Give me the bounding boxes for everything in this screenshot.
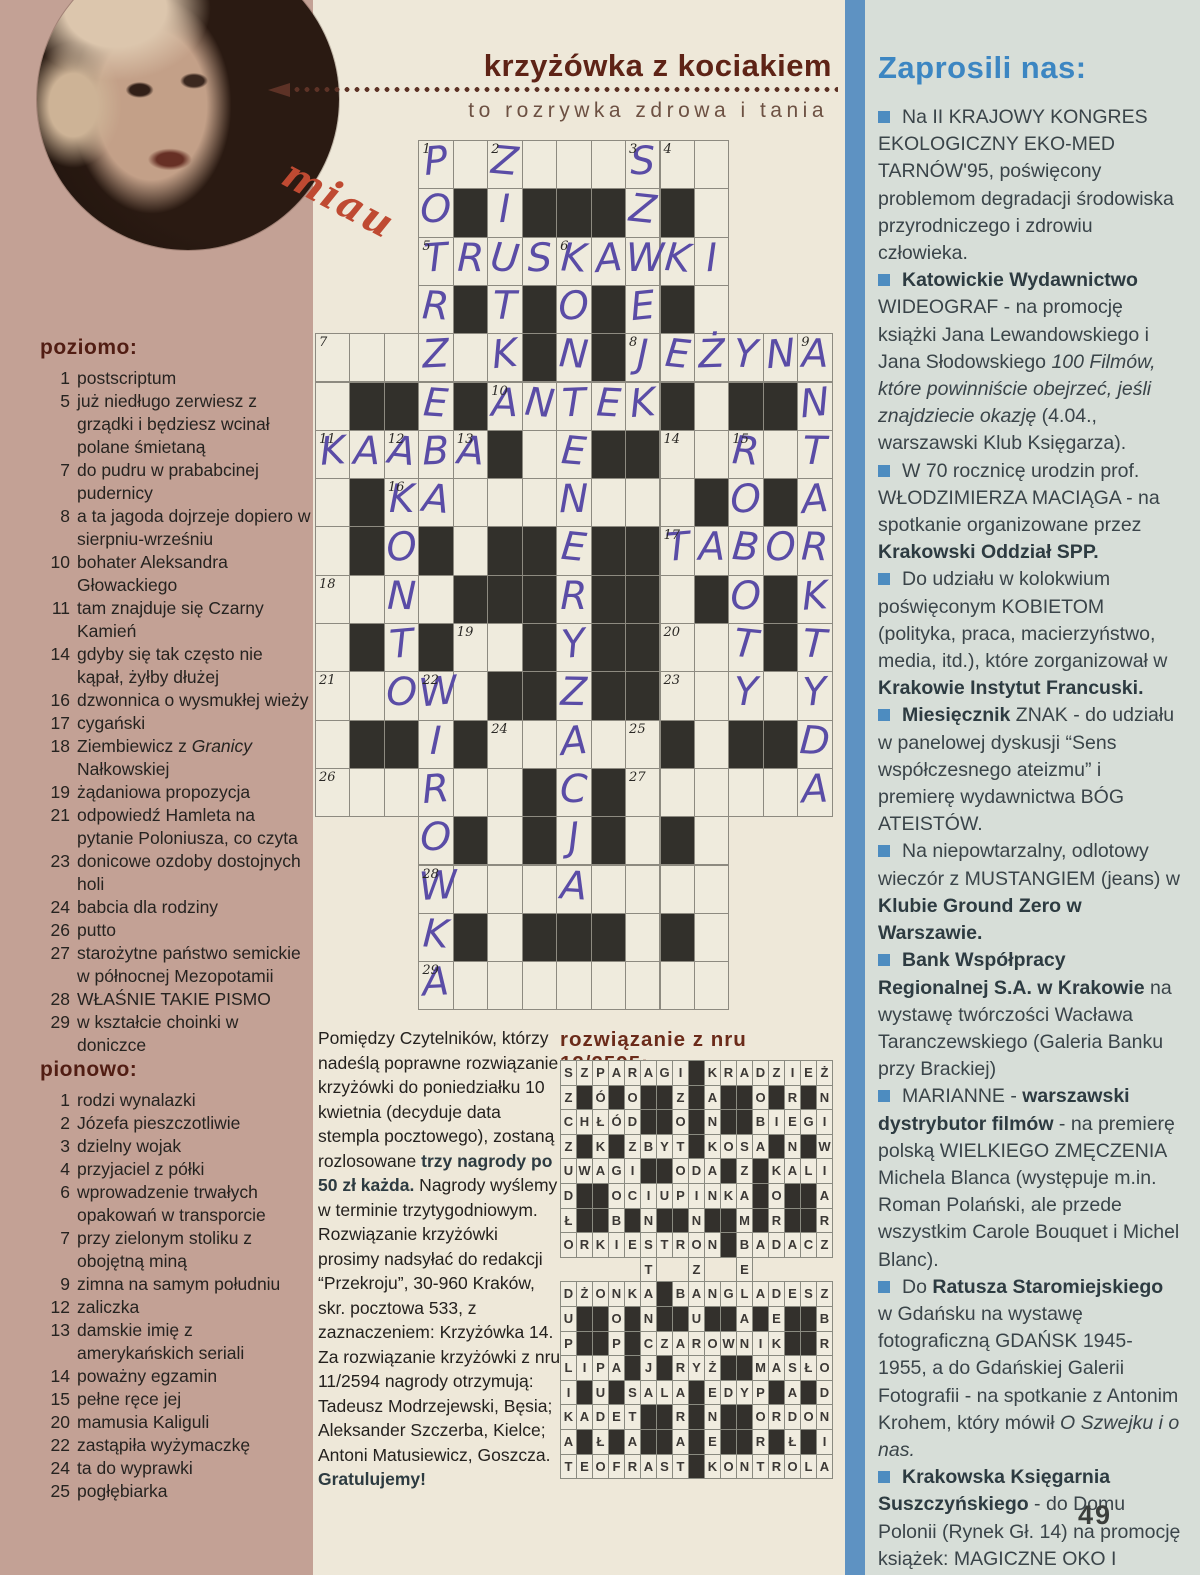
solution-cell: E <box>736 1257 753 1283</box>
solution-letter: D <box>561 1188 576 1203</box>
solution-cell-black <box>608 1380 625 1406</box>
solution-letter: N <box>705 1237 720 1252</box>
crossword-cell-black <box>694 575 729 624</box>
crossword-cell <box>660 961 695 1010</box>
crossword-cell-black <box>728 382 763 431</box>
solution-cell: S <box>624 1380 641 1406</box>
crossword-cell: A <box>556 720 591 769</box>
solution-letter: Z <box>737 1163 752 1178</box>
solution-cell: A <box>624 1429 641 1455</box>
solution-cell: A <box>608 1355 625 1381</box>
handwritten-letter: O <box>729 573 763 619</box>
solution-cell: A <box>704 1085 721 1111</box>
solution-letter: N <box>609 1286 624 1301</box>
solution-letter: S <box>657 1459 672 1474</box>
solution-letter: K <box>705 1459 720 1474</box>
sidebar-item: Bank Współpracy Regionalnej S.A. w Krako… <box>878 947 1181 1083</box>
crossword-cell <box>591 961 626 1010</box>
clue-number: 25 <box>40 1480 77 1503</box>
clue-text: zastąpiła wyżymaczkę <box>77 1434 312 1457</box>
clue-number: 7 <box>40 459 77 505</box>
solution-cell-black <box>720 1208 737 1234</box>
crossword-cell <box>522 961 557 1010</box>
crossword-cell: T <box>384 623 419 672</box>
solution-cell: Z <box>672 1085 689 1111</box>
solution-letter: Ó <box>609 1114 624 1129</box>
crossword-cell: A <box>556 865 591 914</box>
solution-cell: O <box>816 1355 833 1381</box>
solution-cell: E <box>800 1060 817 1086</box>
clue-number: 18 <box>40 735 77 781</box>
crossword-cell-black <box>556 913 591 962</box>
handwritten-letter: E <box>590 380 626 427</box>
clue-text: mamusia Kaliguli <box>77 1411 312 1434</box>
solution-cell: S <box>640 1232 657 1258</box>
sidebar-item: Na niepowtarzalny, odlotowy wieczór z MU… <box>878 838 1181 947</box>
clue-number: 24 <box>40 1457 77 1480</box>
handwritten-letter: J <box>556 814 592 861</box>
clue-text: żądaniowa propozycja <box>77 781 312 804</box>
crossword-cell: T <box>797 430 832 479</box>
dotted-rule <box>292 86 838 93</box>
clue-text: zimna na samym południu <box>77 1273 312 1296</box>
solution-cell: A <box>640 1454 657 1480</box>
clue-item: 9zimna na samym południu <box>40 1273 312 1296</box>
printed-clue-number: 10 <box>491 384 508 399</box>
solution-cell: S <box>656 1454 673 1480</box>
solution-letter: D <box>769 1237 784 1252</box>
solution-cell-black <box>768 1085 785 1111</box>
solution-cell: Ż <box>704 1355 721 1381</box>
solution-cell: F <box>608 1454 625 1480</box>
solution-cell-black <box>800 1380 817 1406</box>
crossword-cell <box>349 671 384 720</box>
sidebar-item: Na II KRAJOWY KONGRES EKOLOGICZNY EKO-ME… <box>878 104 1181 267</box>
solution-cell: A <box>608 1060 625 1086</box>
solution-cell: E <box>624 1232 641 1258</box>
crossword-cell-black <box>453 382 488 431</box>
solution-letter: R <box>721 1065 736 1080</box>
text-run: Na niepowtarzalny, odlotowy wieczór z MU… <box>878 840 1180 889</box>
crossword-cell-black <box>487 575 522 624</box>
across-heading: poziomo: <box>40 336 312 360</box>
solution-letter: Ł <box>593 1114 608 1129</box>
clue-number: 10 <box>40 551 77 597</box>
crossword-cell <box>487 865 522 914</box>
solution-letter: Z <box>561 1139 576 1154</box>
crossword-cell: O <box>728 575 763 624</box>
printed-clue-number: 8 <box>629 335 637 350</box>
solution-cell: Z <box>736 1158 753 1184</box>
solution-letter: Ó <box>593 1090 608 1105</box>
solution-cell-black <box>608 1134 625 1160</box>
solution-letter: N <box>641 1311 656 1326</box>
solution-cell: Y <box>688 1355 705 1381</box>
crossword-cell <box>625 913 660 962</box>
crossword-cell <box>315 720 350 769</box>
handwritten-letter: K <box>418 911 454 958</box>
solution-cell-black <box>784 1183 801 1209</box>
clue-item: 14poważny egzamin <box>40 1365 312 1388</box>
handwritten-letter: R <box>453 235 487 281</box>
clue-number: 24 <box>40 896 77 919</box>
solution-letter: N <box>737 1459 752 1474</box>
crossword-cell <box>522 478 557 527</box>
crossword-cell-black <box>556 188 591 237</box>
clue-text: bohater Aleksandra Głowackiego <box>77 551 312 597</box>
solution-cell: T <box>672 1134 689 1160</box>
crossword-cell-black <box>522 188 557 237</box>
handwritten-letter: E <box>555 427 592 475</box>
clue-item: 5już niedługo zerwiesz z grządki i będzi… <box>40 390 312 459</box>
crossword-cell <box>349 575 384 624</box>
solution-cell-black <box>688 1134 705 1160</box>
sidebar-item: Do udziału w kolokwium poświęconym KOBIE… <box>878 566 1181 702</box>
crossword-cell <box>453 526 488 575</box>
crossword-cell-black <box>453 188 488 237</box>
text-run: Ratusza Staromiejskiego <box>932 1276 1163 1298</box>
solution-letter: I <box>753 1336 768 1351</box>
solution-letter: O <box>561 1237 576 1252</box>
solution-cell: I <box>816 1158 833 1184</box>
solution-cell: I <box>688 1183 705 1209</box>
crossword-cell <box>487 478 522 527</box>
solution-cell: Ł <box>592 1429 609 1455</box>
solution-cell: P <box>608 1331 625 1357</box>
handwritten-letter: K <box>624 379 661 427</box>
crossword-cell-black <box>487 526 522 575</box>
solution-letter: Z <box>577 1065 592 1080</box>
solution-letter: R <box>577 1237 592 1252</box>
handwritten-letter: U <box>486 234 524 282</box>
solution-letter: R <box>689 1336 704 1351</box>
clue-item: 6wprowadzenie trwałych opakowań w transp… <box>40 1181 312 1227</box>
solution-letter: I <box>561 1385 576 1400</box>
crossword-cell <box>453 478 488 527</box>
solution-cell: D <box>560 1281 577 1307</box>
solution-cell: K <box>768 1158 785 1184</box>
crossword-cell <box>728 768 763 817</box>
crossword-cell <box>763 671 798 720</box>
clue-text: postscriptum <box>77 367 312 390</box>
crossword-cell: C <box>556 768 591 817</box>
text-run: Na II KRAJOWY KONGRES EKOLOGICZNY EKO-ME… <box>878 106 1174 264</box>
solution-cell: N <box>704 1232 721 1258</box>
solution-letter: A <box>705 1090 720 1105</box>
clue-text: wprowadzenie trwałych opakowań w transpo… <box>77 1181 312 1227</box>
down-heading: pionowo: <box>40 1058 312 1082</box>
solution-letter: S <box>625 1385 640 1400</box>
solution-cell: K <box>560 1404 577 1430</box>
crossword-cell <box>384 768 419 817</box>
clue-text: poważny egzamin <box>77 1365 312 1388</box>
sidebar-heading: Zaprosili nas: <box>878 50 1178 86</box>
solution-letter: A <box>641 1065 656 1080</box>
crossword-cell-black <box>625 575 660 624</box>
solution-cell: A <box>816 1183 833 1209</box>
solution-cell-black <box>576 1331 593 1357</box>
crossword-cell <box>694 720 729 769</box>
solution-cell: Z <box>816 1232 833 1258</box>
solution-cell: G <box>656 1060 673 1086</box>
square-bullet-icon <box>878 573 890 585</box>
crossword-cell <box>660 575 695 624</box>
solution-letter: D <box>561 1286 576 1301</box>
solution-cell-black <box>800 1429 817 1455</box>
clue-text: w kształcie choinki w doniczce <box>77 1011 312 1057</box>
solution-letter: R <box>769 1213 784 1228</box>
solution-cell: K <box>704 1454 721 1480</box>
handwritten-letter: A <box>350 429 384 475</box>
sidebar-item: W 70 rocznicę urodzin prof. WŁODZIMIERZA… <box>878 458 1181 567</box>
solution-letter: Ł <box>593 1434 608 1449</box>
solution-cell-black <box>688 1380 705 1406</box>
clue-number: 28 <box>40 988 77 1011</box>
solution-letter: Ż <box>705 1360 720 1375</box>
crossword-cell <box>487 816 522 865</box>
solution-letter: A <box>705 1163 720 1178</box>
solution-letter: P <box>561 1336 576 1351</box>
solution-cell-black <box>592 1208 609 1234</box>
solution-cell-black <box>784 1331 801 1357</box>
clue-item: 11tam znajduje się Czarny Kamień <box>40 597 312 643</box>
solution-cell: P <box>752 1380 769 1406</box>
solution-cell-black <box>720 1306 737 1332</box>
clue-text: Józefa pieszczotliwie <box>77 1112 312 1135</box>
printed-clue-number: 26 <box>319 770 336 785</box>
magazine-page: miau krzyżówka z kociakiem to rozrywka z… <box>0 0 1200 1575</box>
solution-cell: A <box>752 1281 769 1307</box>
handwritten-letter: K <box>659 234 696 282</box>
solution-letter: I <box>641 1188 656 1203</box>
solution-cell-black <box>656 1306 673 1332</box>
solution-cell: Ó <box>608 1109 625 1135</box>
solution-letter: A <box>641 1286 656 1301</box>
printed-clue-number: 7 <box>319 335 327 350</box>
clue-number: 1 <box>40 367 77 390</box>
solution-letter: A <box>561 1434 576 1449</box>
solution-letter: Y <box>657 1139 672 1154</box>
solution-cell: O <box>624 1085 641 1111</box>
solution-cell: O <box>560 1232 577 1258</box>
solution-cell: T <box>560 1454 577 1480</box>
solution-letter: D <box>753 1065 768 1080</box>
crossword-cell-black <box>487 430 522 479</box>
clue-item: 13damskie imię z amerykańskich seriali <box>40 1319 312 1365</box>
crossword-cell-black <box>418 623 453 672</box>
solution-letter: N <box>785 1139 800 1154</box>
solution-letter: M <box>753 1360 768 1375</box>
solution-cell: Z <box>656 1331 673 1357</box>
clue-number: 13 <box>40 1319 77 1365</box>
solution-cell-black <box>592 1183 609 1209</box>
crossword-cell <box>763 768 798 817</box>
solution-cell: S <box>800 1281 817 1307</box>
solution-letter: D <box>769 1286 784 1301</box>
solution-cell: B <box>752 1109 769 1135</box>
solution-cell: T <box>752 1454 769 1480</box>
handwritten-letter: R <box>418 283 454 330</box>
solution-cell: A <box>768 1355 785 1381</box>
solution-letter: S <box>561 1065 576 1080</box>
solution-cell: I <box>640 1183 657 1209</box>
clue-item: 12zaliczka <box>40 1296 312 1319</box>
square-bullet-icon <box>878 1281 890 1293</box>
clue-text: zaliczka <box>77 1296 312 1319</box>
solution-cell: A <box>784 1380 801 1406</box>
handwritten-letter: R <box>798 525 833 571</box>
printed-clue-number: 4 <box>664 142 672 157</box>
solution-letter: A <box>737 1065 752 1080</box>
handwritten-letter: A <box>556 863 592 910</box>
divider-stripe <box>845 0 865 1575</box>
solution-letter: A <box>641 1459 656 1474</box>
solution-letter: O <box>673 1163 688 1178</box>
clue-item: 10bohater Aleksandra Głowackiego <box>40 551 312 597</box>
solution-cell: D <box>752 1060 769 1086</box>
solution-letter: B <box>817 1311 832 1326</box>
solution-letter: N <box>705 1114 720 1129</box>
handwritten-letter: C <box>556 766 591 812</box>
crossword-cell: Y <box>556 623 591 672</box>
clue-item: 2Józefa pieszczotliwie <box>40 1112 312 1135</box>
solution-letter: E <box>785 1114 800 1129</box>
solution-letter: B <box>737 1237 752 1252</box>
handwritten-letter: Z <box>418 331 454 378</box>
text-run: Krakowski Oddział SPP. <box>878 541 1099 563</box>
crossword-cell-black <box>591 575 626 624</box>
crossword-cell <box>591 720 626 769</box>
solution-letter: I <box>625 1163 640 1178</box>
crossword-cell-black <box>660 188 695 237</box>
clue-item: 25pogłębiarka <box>40 1480 312 1503</box>
solution-cell-black <box>656 1429 673 1455</box>
solution-letter: Y <box>737 1385 752 1400</box>
solution-cell-black <box>624 1208 641 1234</box>
solution-letter: I <box>817 1163 832 1178</box>
crossword-cell: T <box>487 285 522 334</box>
handwritten-letter: T <box>556 380 591 426</box>
solution-cell: Z <box>576 1060 593 1086</box>
handwritten-letter: O <box>729 477 764 523</box>
solution-letter: N <box>705 1409 720 1424</box>
crossword-cell: Ż <box>694 333 729 382</box>
clue-text: WŁAŚNIE TAKIE PISMO <box>77 988 312 1011</box>
solution-cell: N <box>640 1208 657 1234</box>
solution-letter: A <box>753 1237 768 1252</box>
clue-number: 20 <box>40 1411 77 1434</box>
crossword-cell: E <box>556 526 591 575</box>
solution-cell: I <box>816 1429 833 1455</box>
solution-cell: D <box>768 1281 785 1307</box>
crossword-cell <box>694 816 729 865</box>
solution-letter: O <box>769 1188 784 1203</box>
clue-text: a ta jagoda dojrzeje dopiero w sierpniu-… <box>77 505 312 551</box>
crossword-cell: I <box>694 237 729 286</box>
solution-cell: Z <box>688 1257 705 1283</box>
handwritten-letter: Z <box>557 670 591 716</box>
handwritten-letter: R <box>557 574 590 619</box>
solution-letter: R <box>673 1409 688 1424</box>
solution-letter: O <box>593 1459 608 1474</box>
page-title: krzyżówka z kociakiem <box>430 48 832 84</box>
clue-item: 17cygański <box>40 712 312 735</box>
solution-cell: B <box>608 1208 625 1234</box>
clue-number: 9 <box>40 1273 77 1296</box>
printed-clue-number: 9 <box>801 335 809 350</box>
solution-cell: R <box>768 1404 785 1430</box>
solution-letter: A <box>785 1163 800 1178</box>
clue-item: 21odpowiedź Hamleta na pytanie Poloniusz… <box>40 804 312 850</box>
crossword-cell: A <box>797 478 832 527</box>
solution-letter: O <box>593 1286 608 1301</box>
solution-letter: I <box>673 1065 688 1080</box>
square-bullet-icon <box>878 845 890 857</box>
solution-cell: U <box>688 1306 705 1332</box>
crossword-cell <box>556 140 591 189</box>
solution-letter: K <box>705 1065 720 1080</box>
solution-letter: E <box>785 1286 800 1301</box>
clue-text: cygański <box>77 712 312 735</box>
solution-letter: A <box>753 1286 768 1301</box>
handwritten-letter: Y <box>729 670 762 715</box>
solution-cell-black <box>640 1109 657 1135</box>
solution-cell: S <box>560 1060 577 1086</box>
solution-letter: D <box>593 1409 608 1424</box>
solution-cell: D <box>592 1404 609 1430</box>
solution-letter: R <box>817 1213 832 1228</box>
solution-cell: A <box>688 1281 705 1307</box>
square-bullet-icon <box>878 465 890 477</box>
printed-clue-number: 28 <box>422 867 439 882</box>
sidebar-item: Katowickie Wydawnictwo WIDEOGRAF - na pr… <box>878 267 1181 457</box>
clue-item: 1rodzi wynalazki <box>40 1089 312 1112</box>
solution-letter: D <box>625 1114 640 1129</box>
solution-cell-black <box>688 1060 705 1086</box>
solution-letter: D <box>689 1163 704 1178</box>
solution-cell-black <box>640 1085 657 1111</box>
handwritten-letter: O <box>556 283 592 330</box>
solution-letter: Z <box>625 1139 640 1154</box>
solution-cell: A <box>752 1232 769 1258</box>
crossword-cell-black <box>384 720 419 769</box>
handwritten-letter: I <box>694 235 730 282</box>
clue-item: 23donicowe ozdoby dostojnych holi <box>40 850 312 896</box>
printed-clue-number: 21 <box>319 673 336 688</box>
solution-cell-black <box>720 1429 737 1455</box>
solution-cell: C <box>624 1183 641 1209</box>
crossword-cell: N <box>384 575 419 624</box>
solution-cell: O <box>752 1085 769 1111</box>
solution-cell: A <box>592 1158 609 1184</box>
crossword-cell: O <box>728 478 763 527</box>
solution-letter: E <box>769 1311 784 1326</box>
solution-letter: A <box>689 1286 704 1301</box>
crossword-cell: A <box>591 237 626 286</box>
solution-letter: P <box>609 1336 624 1351</box>
crossword-cell: O <box>418 188 453 237</box>
handwritten-letter: A <box>590 234 627 282</box>
solution-cell: A <box>736 1306 753 1332</box>
solution-letter: E <box>609 1409 624 1424</box>
solution-letter: I <box>689 1188 704 1203</box>
solution-letter: A <box>673 1336 688 1351</box>
crossword-cell: R <box>453 237 488 286</box>
clue-number: 14 <box>40 1365 77 1388</box>
solution-cell-black <box>672 1306 689 1332</box>
clue-text: przyjaciel z półki <box>77 1158 312 1181</box>
solution-letter: B <box>641 1139 656 1154</box>
